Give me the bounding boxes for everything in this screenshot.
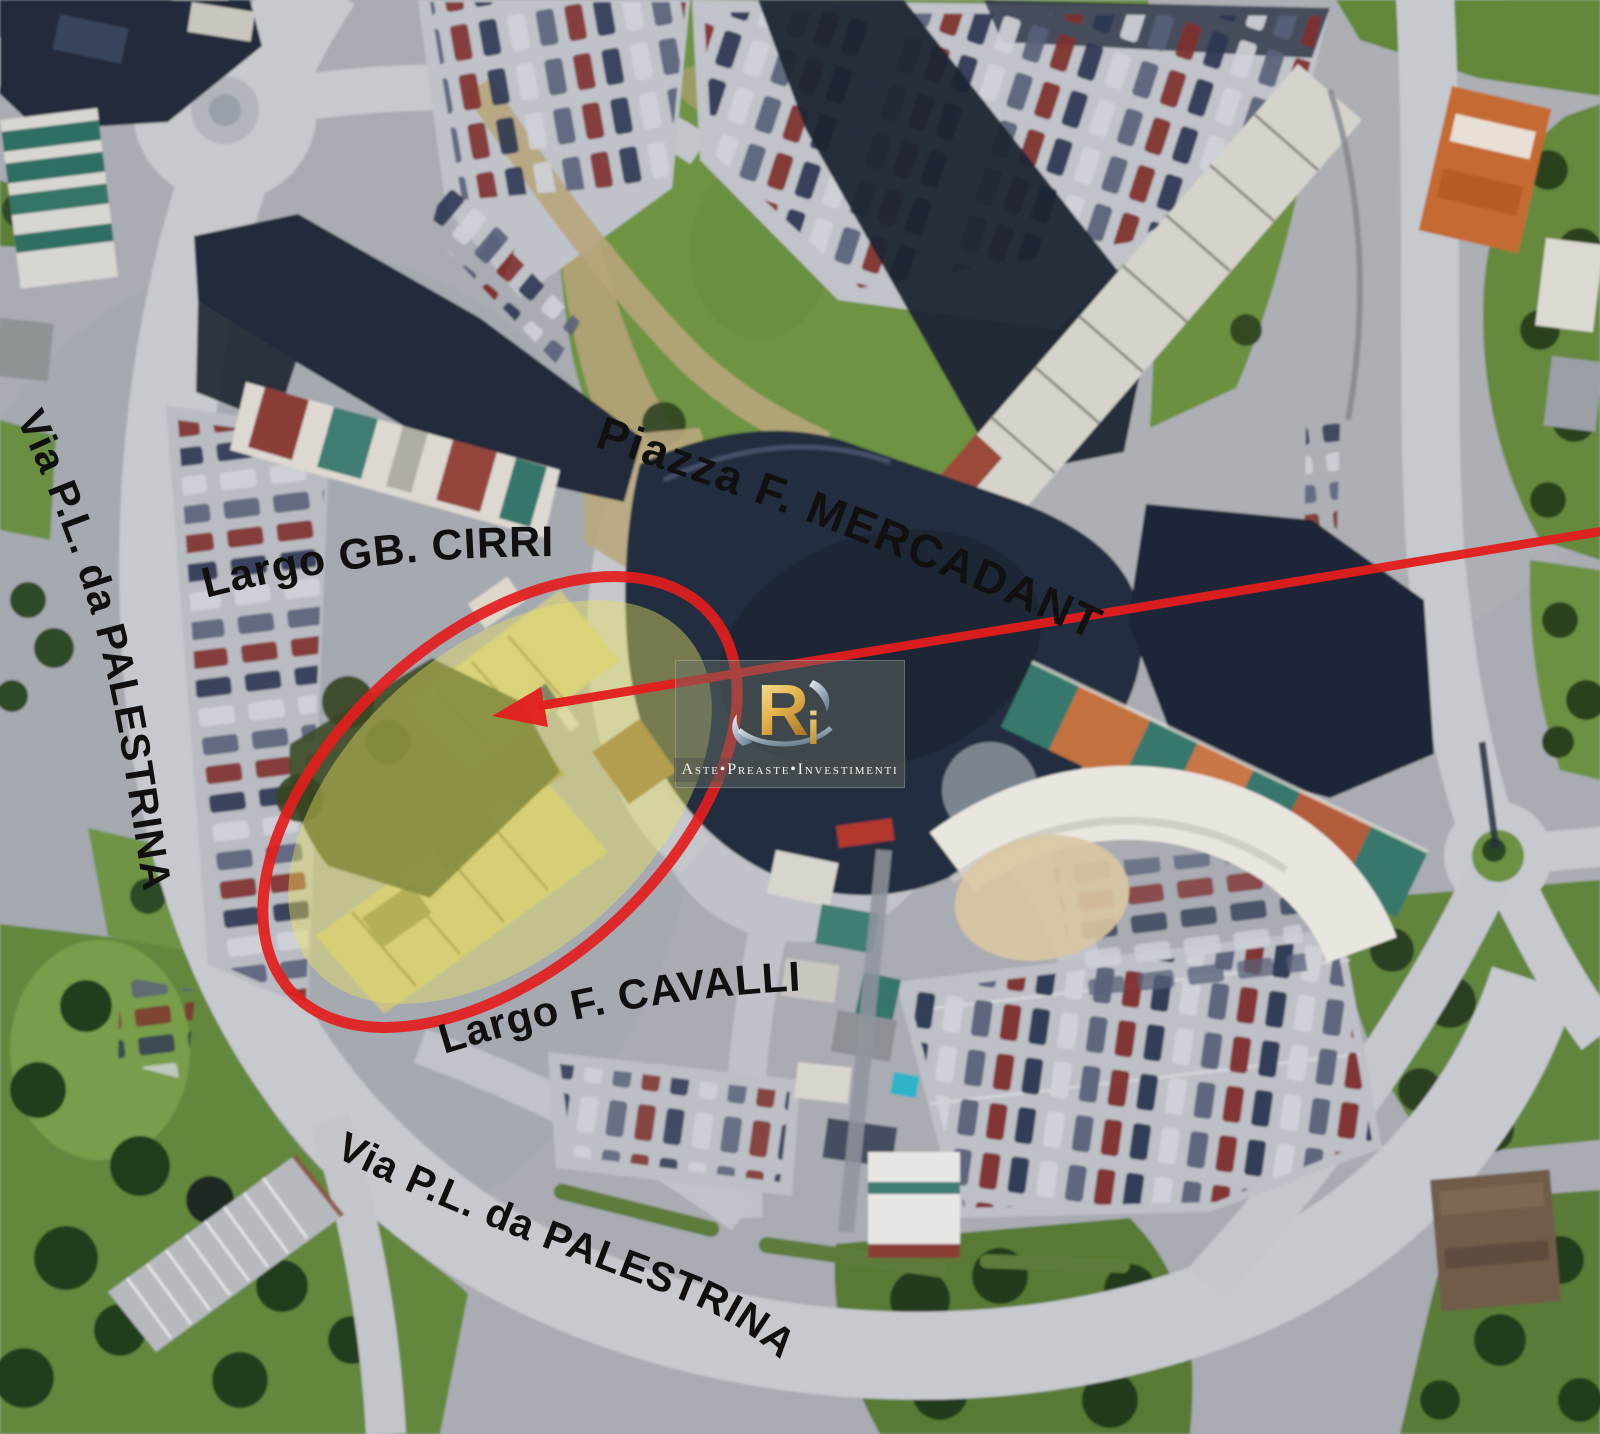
logo-letter-r: R <box>757 668 809 754</box>
agency-tagline: Aste•Preaste•Investimenti <box>674 758 905 782</box>
agency-watermark: R i Aste•Preaste•Investimenti <box>675 660 905 788</box>
aerial-map-page: Largo GB. CIRRI Piazza F. MERCADANTE Via… <box>0 0 1600 1434</box>
logo-letter-i: i <box>807 698 820 758</box>
agency-logo: R i <box>715 672 865 758</box>
